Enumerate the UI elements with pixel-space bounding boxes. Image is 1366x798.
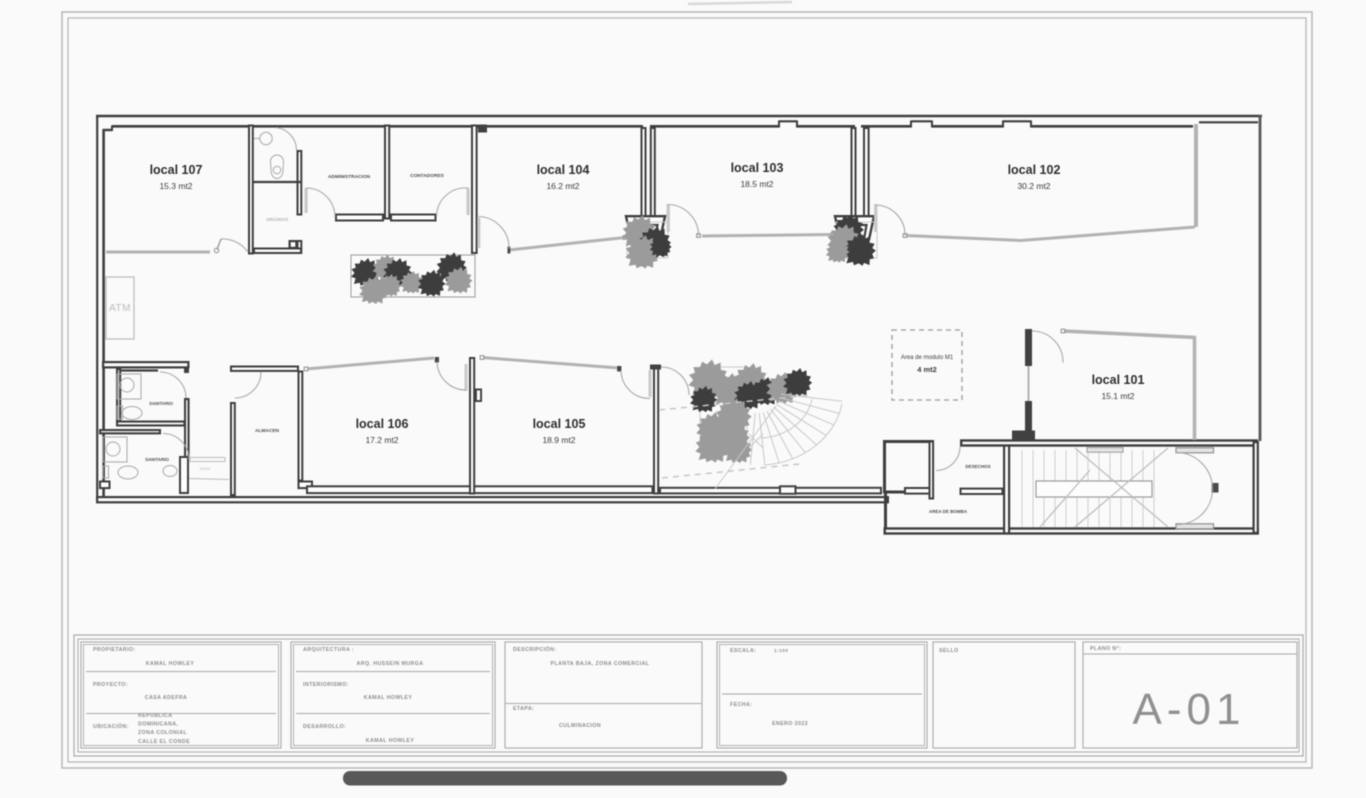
svg-text:CULMINACION: CULMINACION [559,723,601,729]
svg-text:CONTADORES: CONTADORES [410,173,445,179]
svg-text:PLANTA BAJA, ZONA COMERCIAL: PLANTA BAJA, ZONA COMERCIAL [551,661,650,667]
svg-text:ARCHIVO: ARCHIVO [266,217,288,223]
svg-text:local 103: local 103 [731,161,784,175]
svg-text:ESCALA:: ESCALA: [730,648,756,654]
svg-text:18.9 mt2: 18.9 mt2 [542,435,575,445]
svg-text:DOMINICANA,: DOMINICANA, [138,722,178,728]
svg-text:PLANO N°:: PLANO N°: [1090,646,1121,652]
svg-text:ENERO 2022: ENERO 2022 [772,721,808,727]
svg-text:REPUBLICA: REPUBLICA [138,713,173,719]
svg-text:DESECHOS: DESECHOS [965,464,990,469]
svg-text:ZONA COLONIAL: ZONA COLONIAL [138,730,188,736]
svg-text:15.3 mt2: 15.3 mt2 [159,181,192,191]
svg-text:local 107: local 107 [150,163,203,177]
svg-text:KAMAL HOWLEY: KAMAL HOWLEY [364,695,413,701]
svg-text:local 101: local 101 [1092,373,1145,387]
svg-text:ARQUITECTURA :: ARQUITECTURA : [303,647,354,653]
svg-text:SELLO: SELLO [939,648,959,654]
svg-text:SANITARIO: SANITARIO [145,457,169,462]
svg-text:XXXX: XXXX [200,466,211,471]
svg-text:PROPIETARIO:: PROPIETARIO: [93,647,136,653]
svg-text:SANITARIO: SANITARIO [149,401,173,406]
svg-text:CASA ADEFRA: CASA ADEFRA [145,695,188,701]
svg-text:AREA DE BOMBA: AREA DE BOMBA [929,509,968,514]
svg-text:1:100: 1:100 [774,648,788,654]
svg-text:17.2 mt2: 17.2 mt2 [365,435,398,445]
svg-text:Area de modulo M1: Area de modulo M1 [901,355,954,361]
svg-text:local 102: local 102 [1008,163,1061,177]
svg-text:KAMAL HOWLEY: KAMAL HOWLEY [366,738,415,744]
svg-text:30.2 mt2: 30.2 mt2 [1017,181,1050,191]
svg-text:18.5 mt2: 18.5 mt2 [740,179,773,189]
svg-text:ADMINISTRACION: ADMINISTRACION [328,174,371,180]
svg-text:ATM: ATM [109,303,131,314]
svg-text:KAMAL HOWLEY: KAMAL HOWLEY [146,661,195,667]
svg-text:ARQ. HUSSEIN MURGA: ARQ. HUSSEIN MURGA [357,661,424,667]
svg-text:ALMACEN: ALMACEN [255,428,280,434]
svg-text:DESCRIPCIÓN:: DESCRIPCIÓN: [513,645,556,653]
svg-text:15.1 mt2: 15.1 mt2 [1101,391,1134,401]
svg-text:CALLE EL CONDE: CALLE EL CONDE [138,739,190,745]
svg-text:PROYECTO:: PROYECTO: [93,682,128,688]
svg-text:4 mt2: 4 mt2 [917,365,937,374]
svg-text:DESARROLLO:: DESARROLLO: [303,724,346,730]
svg-text:INTERIORISMO:: INTERIORISMO: [303,682,349,688]
svg-text:UBICACIÓN:: UBICACIÓN: [93,722,129,730]
svg-text:FECHA:: FECHA: [730,702,752,708]
svg-text:A-01: A-01 [1133,685,1246,734]
svg-text:16.2 mt2: 16.2 mt2 [546,181,579,191]
svg-text:local 105: local 105 [533,417,586,431]
svg-text:local 106: local 106 [356,417,409,431]
svg-text:ETAPA:: ETAPA: [513,706,534,712]
svg-text:local 104: local 104 [537,163,590,177]
